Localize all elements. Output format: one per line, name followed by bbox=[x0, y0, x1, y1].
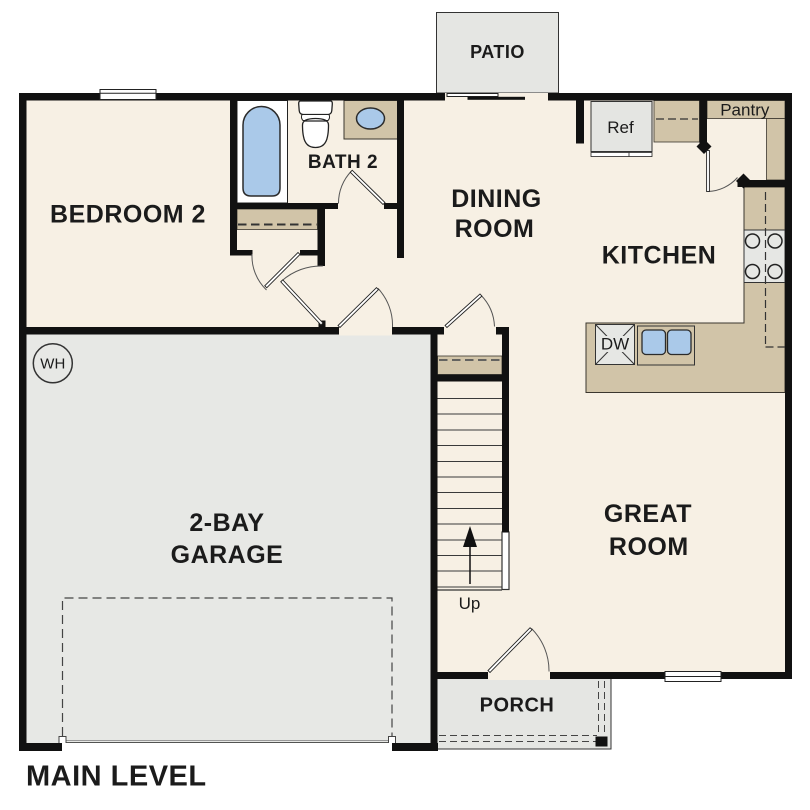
svg-text:GARAGE: GARAGE bbox=[171, 541, 284, 569]
svg-text:BEDROOM 2: BEDROOM 2 bbox=[50, 201, 206, 229]
svg-text:ROOM: ROOM bbox=[455, 215, 535, 243]
svg-text:ROOM: ROOM bbox=[609, 533, 689, 561]
svg-text:2-BAY: 2-BAY bbox=[189, 509, 264, 537]
svg-text:WH: WH bbox=[40, 356, 65, 373]
svg-text:DW: DW bbox=[601, 335, 629, 354]
svg-text:Up: Up bbox=[459, 594, 481, 613]
svg-text:PORCH: PORCH bbox=[480, 695, 555, 717]
svg-text:KITCHEN: KITCHEN bbox=[602, 242, 717, 270]
svg-text:PATIO: PATIO bbox=[470, 42, 525, 62]
svg-text:MAIN LEVEL: MAIN LEVEL bbox=[26, 761, 207, 793]
svg-text:GREAT: GREAT bbox=[604, 500, 692, 528]
svg-text:Ref: Ref bbox=[607, 118, 634, 137]
svg-text:BATH 2: BATH 2 bbox=[308, 152, 378, 173]
svg-text:Pantry: Pantry bbox=[720, 100, 770, 119]
svg-text:DINING: DINING bbox=[451, 185, 542, 213]
